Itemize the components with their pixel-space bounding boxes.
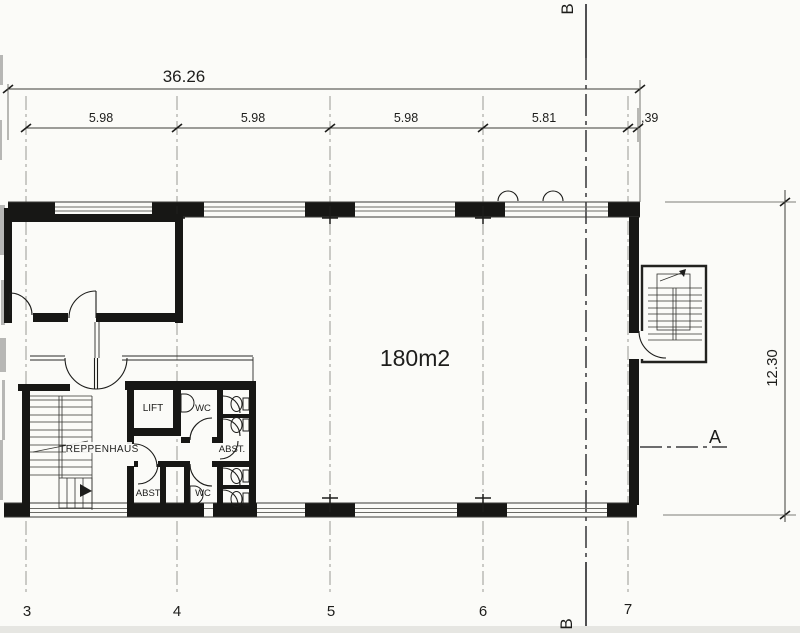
vent-arc-right xyxy=(543,191,563,201)
hall-area-label: 180m2 xyxy=(380,345,450,371)
bay-label-4: 5.81 xyxy=(532,111,556,125)
bay-label-3: 5.98 xyxy=(394,111,418,125)
wc-top-door-arc xyxy=(190,418,212,440)
toilet-1 xyxy=(231,397,249,412)
floor-plan-canvas: 36.26 5.98 5.98 5.98 5.81 ,39 12.30 180m… xyxy=(0,0,800,633)
treppenhaus-label: TREPPENHAUS xyxy=(59,444,138,455)
grid-label-4: 4 xyxy=(173,603,181,620)
room-top-left xyxy=(4,208,183,323)
grid-label-5: 5 xyxy=(327,603,335,620)
abst-left-door-arc xyxy=(138,464,158,484)
annex-door-arc xyxy=(639,331,666,358)
dimension-total-width xyxy=(3,80,645,202)
section-a-label: A xyxy=(709,427,721,447)
grid-label-3: 3 xyxy=(23,603,31,620)
entrance-door-right-arc xyxy=(96,358,127,389)
floor-plan-page: 36.26 5.98 5.98 5.98 5.81 ,39 12.30 180m… xyxy=(0,0,800,633)
wc-bottom-label: WC xyxy=(195,488,211,499)
lift-label: LIFT xyxy=(143,403,164,414)
abst-left-label: ABST. xyxy=(136,488,162,499)
room-door-left-arc xyxy=(10,293,32,315)
total-width-label: 36.26 xyxy=(163,67,206,86)
sink-top xyxy=(181,394,194,412)
scan-artifacts xyxy=(0,55,800,633)
right-height-label: 12.30 xyxy=(764,349,781,387)
grid-label-7: 7 xyxy=(624,601,632,618)
bay-label-2: 5.98 xyxy=(241,111,265,125)
room-door-right-arc xyxy=(69,291,96,318)
bay-label-5: ,39 xyxy=(641,111,658,125)
section-b-label-top: B xyxy=(558,3,577,14)
section-b-label-bottom: B xyxy=(557,618,576,629)
bottom-wall-windows xyxy=(4,494,637,517)
wc-bottom-door-arc xyxy=(190,464,212,486)
abst-mid-label: ABST. xyxy=(219,444,245,455)
annex-staircase xyxy=(642,266,706,362)
annex-stair-arrow xyxy=(679,269,686,277)
bay-label-1: 5.98 xyxy=(89,111,113,125)
wc-top-label: WC xyxy=(195,403,211,414)
grid-label-6: 6 xyxy=(479,603,487,620)
toilet-3 xyxy=(231,469,249,484)
toilet-2 xyxy=(231,418,249,433)
grid-lines xyxy=(26,96,628,596)
vent-arc-left xyxy=(498,191,518,201)
stair-direction-arrow xyxy=(80,484,92,497)
